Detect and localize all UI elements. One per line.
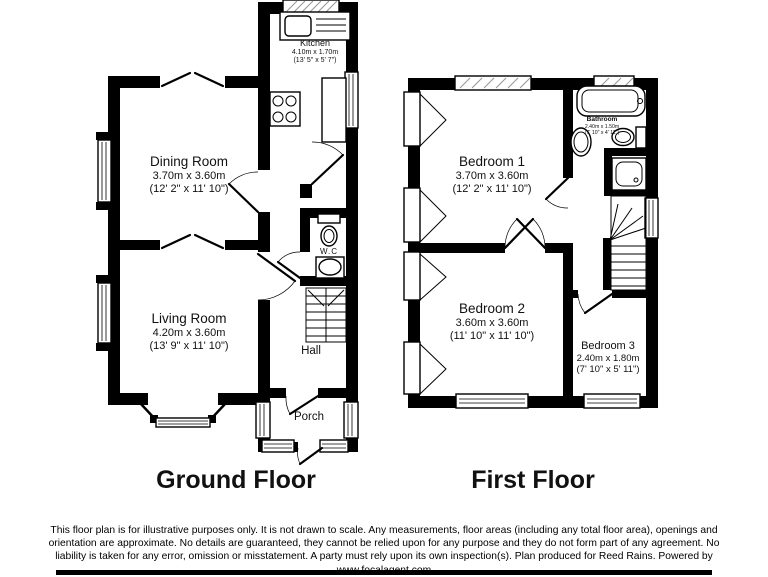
wc-label: W.C	[320, 247, 338, 256]
bedroom3-label: Bedroom 3 2.40m x 1.80m (7' 10" x 5' 11"…	[576, 340, 639, 375]
room-dims-imperial: (13' 5" x 5' 7")	[292, 57, 338, 65]
toilet-icon	[318, 214, 340, 246]
ground-floor-walls	[108, 2, 358, 452]
room-name: Living Room	[149, 311, 228, 327]
bathroom-door	[546, 178, 568, 208]
room-dims-imperial: (13' 9" x 11' 10")	[149, 340, 228, 353]
room-dims-metric: 3.70m x 3.60m	[149, 170, 228, 183]
shower-icon	[612, 158, 646, 190]
bedroom1-label: Bedroom 1 3.70m x 3.60m (12' 2" x 11' 10…	[452, 154, 531, 196]
bedroom2-label: Bedroom 2 3.60m x 3.60m (11' 10" x 11' 1…	[450, 301, 534, 343]
porch-label: Porch	[294, 411, 324, 425]
room-dims-imperial: (12' 2" x 11' 10")	[149, 183, 228, 196]
room-name: Bedroom 2	[450, 301, 534, 317]
wc-door	[278, 252, 300, 278]
first-stairs-icon	[610, 196, 646, 290]
bedroom1-window	[455, 76, 531, 90]
living-room-label: Living Room 4.20m x 3.60m (13' 9" x 11' …	[149, 311, 228, 353]
living-window	[96, 275, 112, 351]
ground-stairs-icon	[306, 288, 346, 342]
disclaimer-text: This floor plan is for illustrative purp…	[34, 524, 734, 577]
kitchen-top-window	[283, 0, 339, 13]
room-dims-metric: 2.40m x 1.50m	[585, 124, 619, 130]
bedroom2-window	[456, 394, 528, 408]
stairwell-window	[645, 198, 658, 238]
hall-label: Hall	[301, 345, 321, 359]
first-floor-title: First Floor	[471, 466, 595, 495]
ground-floor-title: Ground Floor	[156, 466, 316, 495]
ground-floor-plan	[96, 0, 358, 464]
kitchen-counter	[322, 78, 346, 142]
floorplan-page: { "colors": { "wall": "#000000", "backgr…	[0, 0, 768, 576]
room-dims-imperial: (7' 10" x 4' 11")	[585, 130, 619, 136]
room-dims-imperial: (11' 10" x 11' 10")	[450, 330, 534, 343]
room-dims-metric: 4.20m x 3.60m	[149, 327, 228, 340]
wc-basin-icon	[316, 257, 344, 278]
room-name: Dining Room	[149, 154, 228, 170]
room-name: Bedroom 1	[452, 154, 531, 170]
bathroom-label: Bathroom 2.40m x 1.50m (7' 10" x 4' 11")	[585, 116, 619, 136]
dining-door	[229, 172, 258, 212]
kitchen-label: Kitchen 4.10m x 1.70m (13' 5" x 5' 7")	[292, 38, 338, 65]
bath-icon	[577, 86, 645, 116]
room-dims-metric: 4.10m x 1.70m	[292, 49, 338, 57]
room-dims-metric: 3.60m x 3.60m	[450, 317, 534, 330]
bottom-border-bar	[56, 570, 712, 575]
room-name: Bedroom 3	[576, 340, 639, 353]
room-dims-imperial: (12' 2" x 11' 10")	[452, 183, 531, 196]
room-dims-metric: 2.40m x 1.80m	[576, 353, 639, 364]
kitchen-side-window	[345, 72, 358, 128]
kitchen-sink-icon	[280, 12, 350, 40]
room-dims-imperial: (7' 10" x 5' 11")	[576, 364, 639, 375]
room-dims-metric: 3.70m x 3.60m	[452, 170, 531, 183]
kitchen-door	[312, 142, 343, 184]
bedroom3-window	[584, 394, 640, 408]
dining-room-label: Dining Room 3.70m x 3.60m (12' 2" x 11' …	[149, 154, 228, 196]
dining-window	[96, 132, 112, 210]
floorplan-drawing	[0, 0, 768, 576]
room-name: Bathroom	[585, 116, 619, 124]
room-name: Kitchen	[292, 38, 338, 49]
hob-icon	[270, 92, 300, 126]
